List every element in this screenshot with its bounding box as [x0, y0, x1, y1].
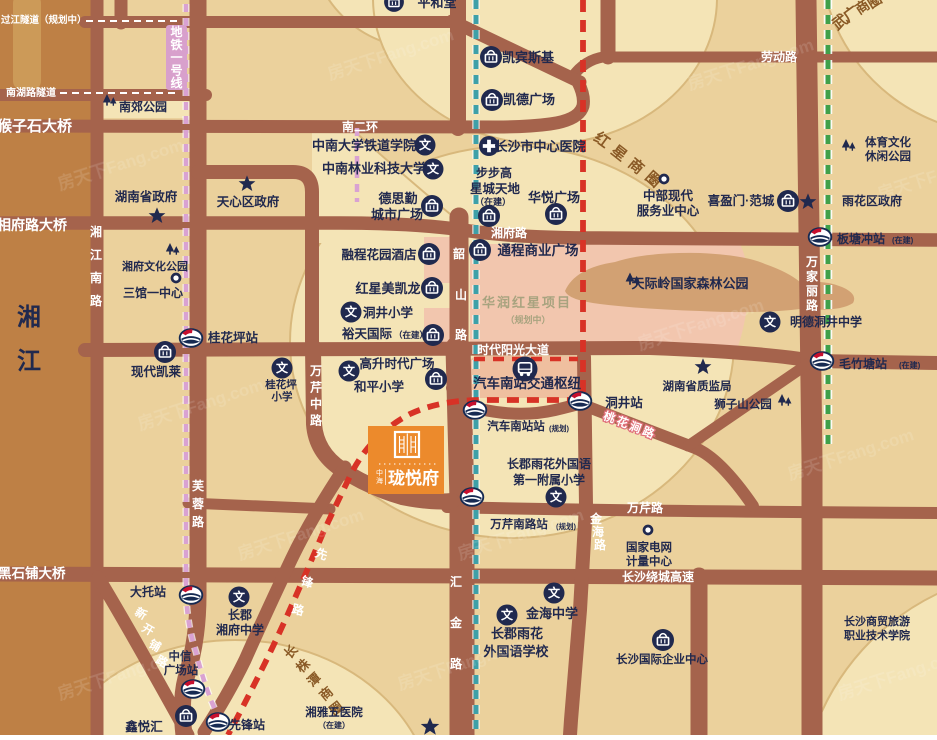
- svg-text:长沙国际企业中心: 长沙国际企业中心: [616, 652, 708, 666]
- svg-text:凯德广场: 凯德广场: [503, 92, 555, 107]
- svg-text:先锋站: 先锋站: [229, 717, 265, 732]
- svg-text:小学: 小学: [271, 390, 293, 403]
- svg-text:黑石铺大桥: 黑石铺大桥: [0, 565, 66, 581]
- svg-text:红星美凯龙: 红星美凯龙: [355, 281, 420, 296]
- svg-text:喜盈门·范城: 喜盈门·范城: [708, 193, 775, 208]
- svg-text:长沙商贸旅游: 长沙商贸旅游: [844, 614, 910, 628]
- svg-text:桂花坪: 桂花坪: [264, 378, 297, 391]
- svg-text:步步高: 步步高: [476, 165, 512, 180]
- svg-text:三馆一中心: 三馆一中心: [123, 285, 183, 300]
- svg-text:桂花坪站: 桂花坪站: [207, 330, 259, 345]
- svg-text:(在建): (在建): [899, 360, 921, 370]
- svg-text:计量中心: 计量中心: [626, 554, 672, 568]
- svg-text:猴子石大桥: 猴子石大桥: [0, 117, 73, 135]
- svg-text:南郊公园: 南郊公园: [119, 99, 167, 114]
- svg-text:时代阳光大道: 时代阳光大道: [477, 342, 549, 357]
- svg-text:长沙绕城高速: 长沙绕城高速: [622, 569, 694, 584]
- svg-text:湘: 湘: [17, 304, 41, 331]
- svg-text:服务业中心: 服务业中心: [637, 203, 700, 218]
- svg-text:芙蓉路: 芙蓉路: [191, 478, 205, 529]
- svg-text:湘府路: 湘府路: [491, 225, 528, 240]
- svg-text:湘府文化公园: 湘府文化公园: [122, 259, 188, 273]
- svg-text:板塘冲站: 板塘冲站: [837, 231, 885, 246]
- svg-text:中南大学铁道学院: 中南大学铁道学院: [312, 138, 416, 153]
- svg-text:相府路大桥: 相府路大桥: [0, 217, 68, 233]
- svg-text:洞井站: 洞井站: [605, 395, 643, 410]
- svg-text:毛竹塘站: 毛竹塘站: [839, 356, 887, 371]
- svg-text:天际岭国家森林公园: 天际岭国家森林公园: [631, 276, 748, 291]
- svg-text:裕天国际: 裕天国际: [342, 326, 393, 341]
- svg-text:金海中学: 金海中学: [525, 606, 578, 621]
- svg-text:通程商业广场: 通程商业广场: [498, 242, 579, 258]
- svg-text:长郡: 长郡: [228, 607, 252, 622]
- svg-text:平和堂: 平和堂: [417, 0, 456, 10]
- svg-text:海: 海: [376, 476, 383, 485]
- svg-text:星城天地: 星城天地: [470, 181, 521, 196]
- svg-text:湖南省政府: 湖南省政府: [115, 189, 178, 204]
- svg-text:狮子山公园: 狮子山公园: [713, 397, 772, 411]
- svg-text:（在建）: （在建）: [475, 196, 511, 207]
- svg-text:万家丽路: 万家丽路: [805, 255, 819, 313]
- svg-text:洞井小学: 洞井小学: [363, 305, 414, 320]
- svg-text:(规划): (规划): [549, 423, 569, 433]
- svg-text:中部现代: 中部现代: [643, 188, 694, 203]
- svg-text:大托站: 大托站: [130, 584, 166, 599]
- svg-text:南二环: 南二环: [342, 119, 378, 134]
- svg-text:长郡雨花外国语: 长郡雨花外国语: [507, 456, 591, 471]
- svg-text:地铁一号线: 地铁一号线: [170, 24, 182, 90]
- svg-text:和平小学: 和平小学: [353, 379, 405, 394]
- svg-text:万芹路: 万芹路: [626, 500, 664, 515]
- svg-text:汽车南站交通枢纽: 汽车南站交通枢纽: [473, 375, 581, 391]
- svg-text:第一附属小学: 第一附属小学: [513, 472, 585, 487]
- svg-text:体育文化: 体育文化: [865, 135, 911, 149]
- svg-text:湘府中学: 湘府中学: [216, 622, 264, 637]
- svg-text:德思勤: 德思勤: [378, 191, 417, 206]
- svg-text:职业技术学院: 职业技术学院: [844, 628, 910, 642]
- svg-text:江: 江: [17, 348, 41, 375]
- svg-text:鑫悦汇: 鑫悦汇: [124, 719, 163, 734]
- svg-text:明德洞井中学: 明德洞井中学: [790, 314, 862, 329]
- svg-text:汽车南站站: 汽车南站站: [487, 419, 545, 433]
- svg-text:湖南省质监局: 湖南省质监局: [663, 379, 732, 393]
- svg-text:中: 中: [376, 468, 383, 477]
- svg-text:城市广场: 城市广场: [371, 207, 423, 222]
- svg-text:华润红星项目: 华润红星项目: [482, 295, 572, 310]
- svg-text:（规划中）: （规划中）: [505, 314, 550, 325]
- svg-text:南湖路隧道: 南湖路隧道: [6, 86, 56, 99]
- svg-text:湘雅五医院: 湘雅五医院: [305, 705, 363, 719]
- svg-text:珑悦府: 珑悦府: [388, 468, 439, 488]
- svg-text:华悦广场: 华悦广场: [528, 190, 580, 205]
- svg-text:休闲公园: 休闲公园: [864, 149, 911, 163]
- svg-text:融程花园酒店: 融程花园酒店: [341, 247, 417, 262]
- svg-text:国家电网: 国家电网: [626, 540, 672, 554]
- svg-text:过江隧道（规划中）: 过江隧道（规划中）: [1, 14, 87, 26]
- svg-text:(在建): (在建): [892, 235, 914, 245]
- svg-text:现代凯莱: 现代凯莱: [131, 364, 182, 379]
- svg-text:长沙市中心医院: 长沙市中心医院: [494, 139, 585, 154]
- svg-text:高升时代广场: 高升时代广场: [359, 356, 434, 371]
- svg-text:中南林业科技大学: 中南林业科技大学: [322, 161, 426, 176]
- svg-text:凯宾斯基: 凯宾斯基: [502, 50, 555, 65]
- svg-text:（在建）: （在建）: [318, 720, 350, 730]
- svg-text:天心区政府: 天心区政府: [217, 194, 280, 209]
